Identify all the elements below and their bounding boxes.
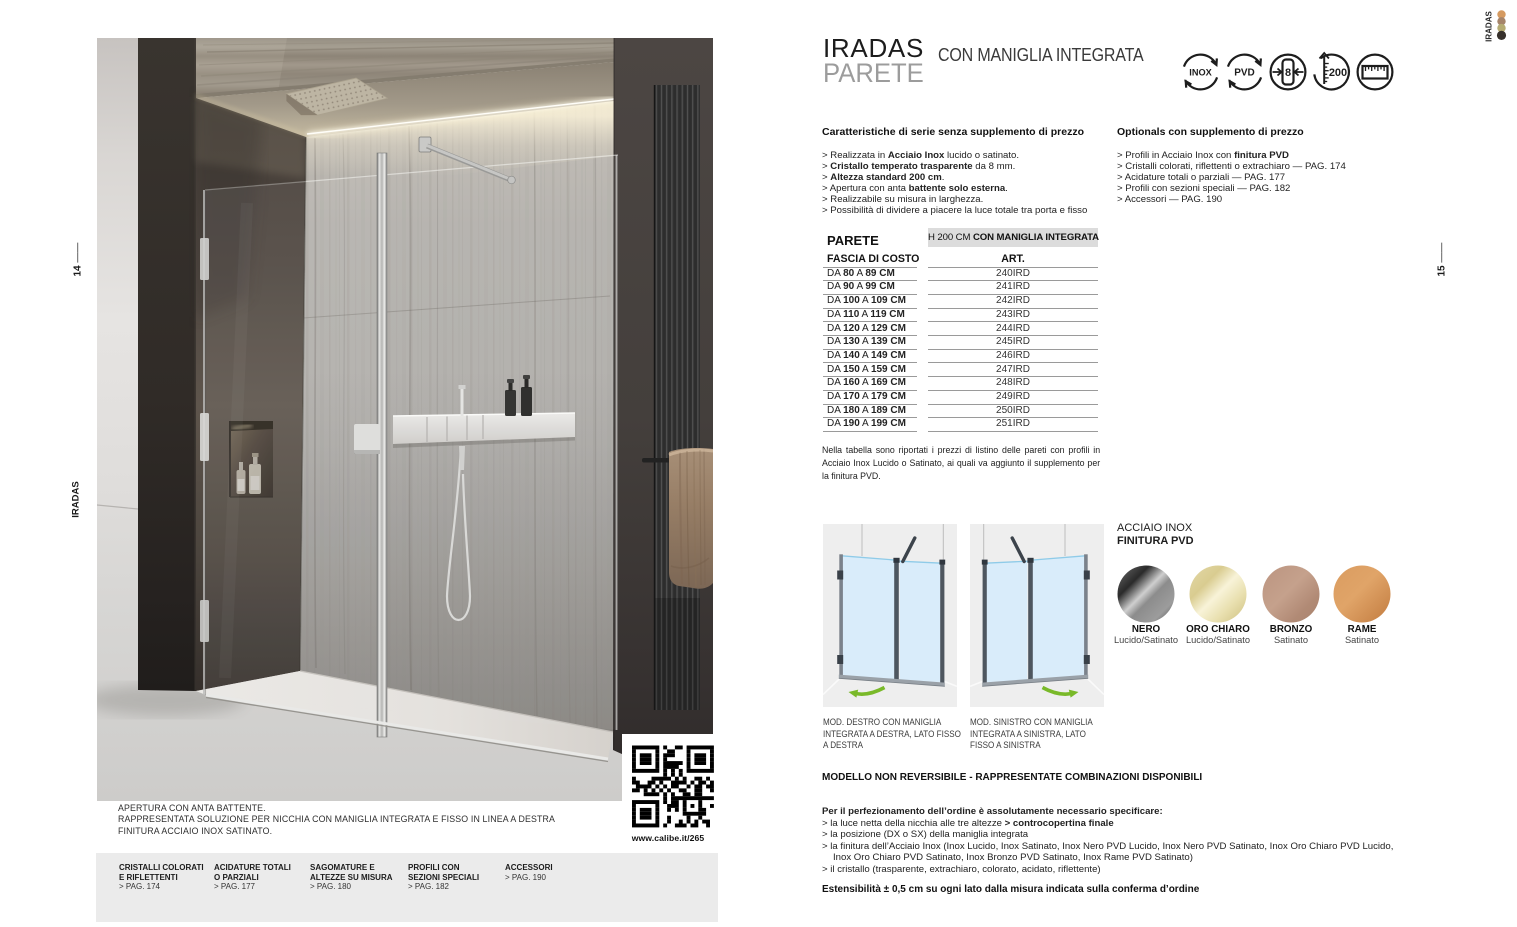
svg-text:8: 8	[1285, 67, 1291, 79]
svg-text:PVD: PVD	[1234, 68, 1255, 79]
svg-text:200: 200	[1329, 67, 1347, 79]
svg-text:INOX: INOX	[1189, 68, 1212, 78]
